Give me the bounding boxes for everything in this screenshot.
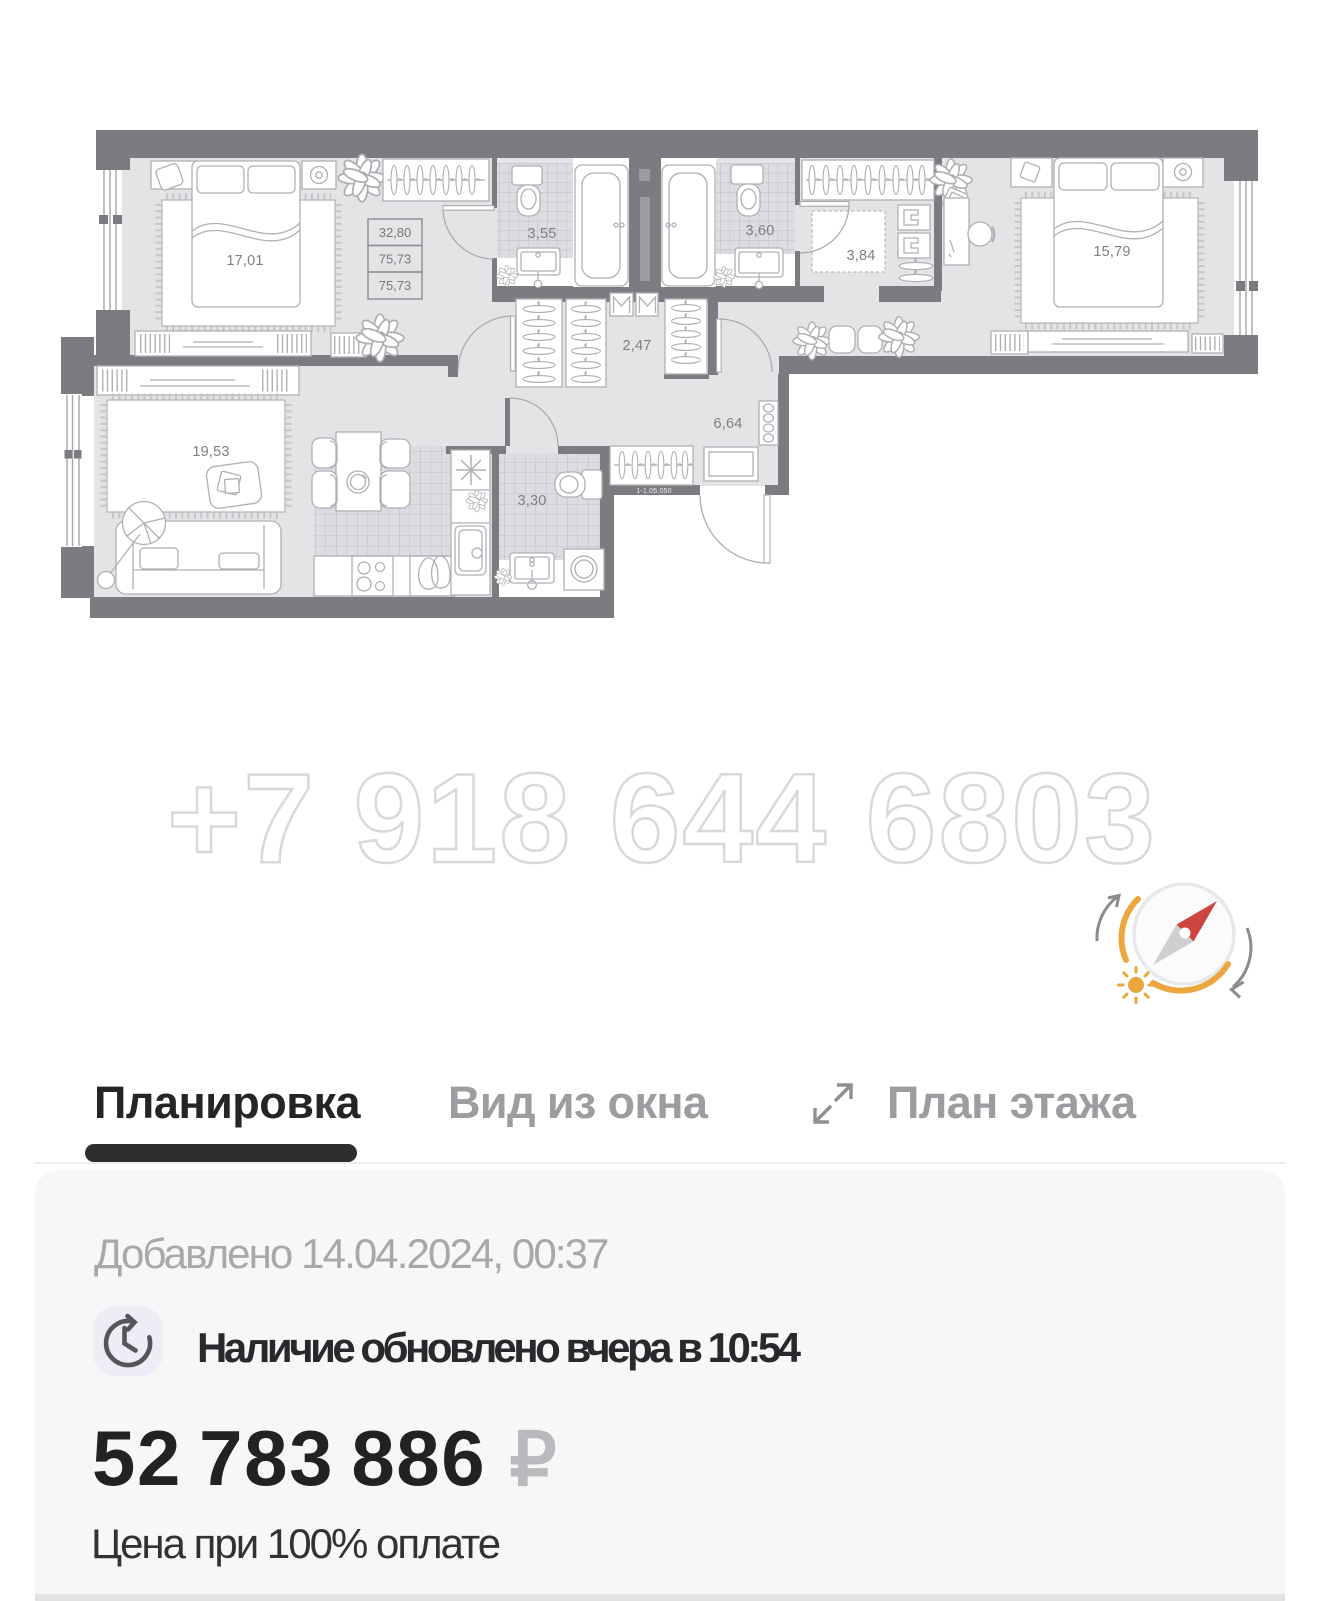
svg-text:75,73: 75,73 (379, 278, 412, 293)
svg-text:15,79: 15,79 (1093, 244, 1130, 260)
svg-text:3,60: 3,60 (745, 223, 774, 239)
svg-text:17,01: 17,01 (226, 253, 263, 269)
svg-text:3,84: 3,84 (846, 248, 875, 264)
svg-text:75,73: 75,73 (379, 252, 412, 267)
svg-text:32,80: 32,80 (379, 225, 412, 240)
svg-text:1-1.05.050: 1-1.05.050 (636, 488, 671, 495)
svg-text:3,55: 3,55 (527, 226, 556, 242)
svg-text:6,64: 6,64 (713, 416, 742, 432)
svg-text:19,53: 19,53 (192, 444, 229, 460)
svg-text:3,30: 3,30 (517, 493, 546, 509)
svg-text:2,47: 2,47 (622, 338, 651, 354)
